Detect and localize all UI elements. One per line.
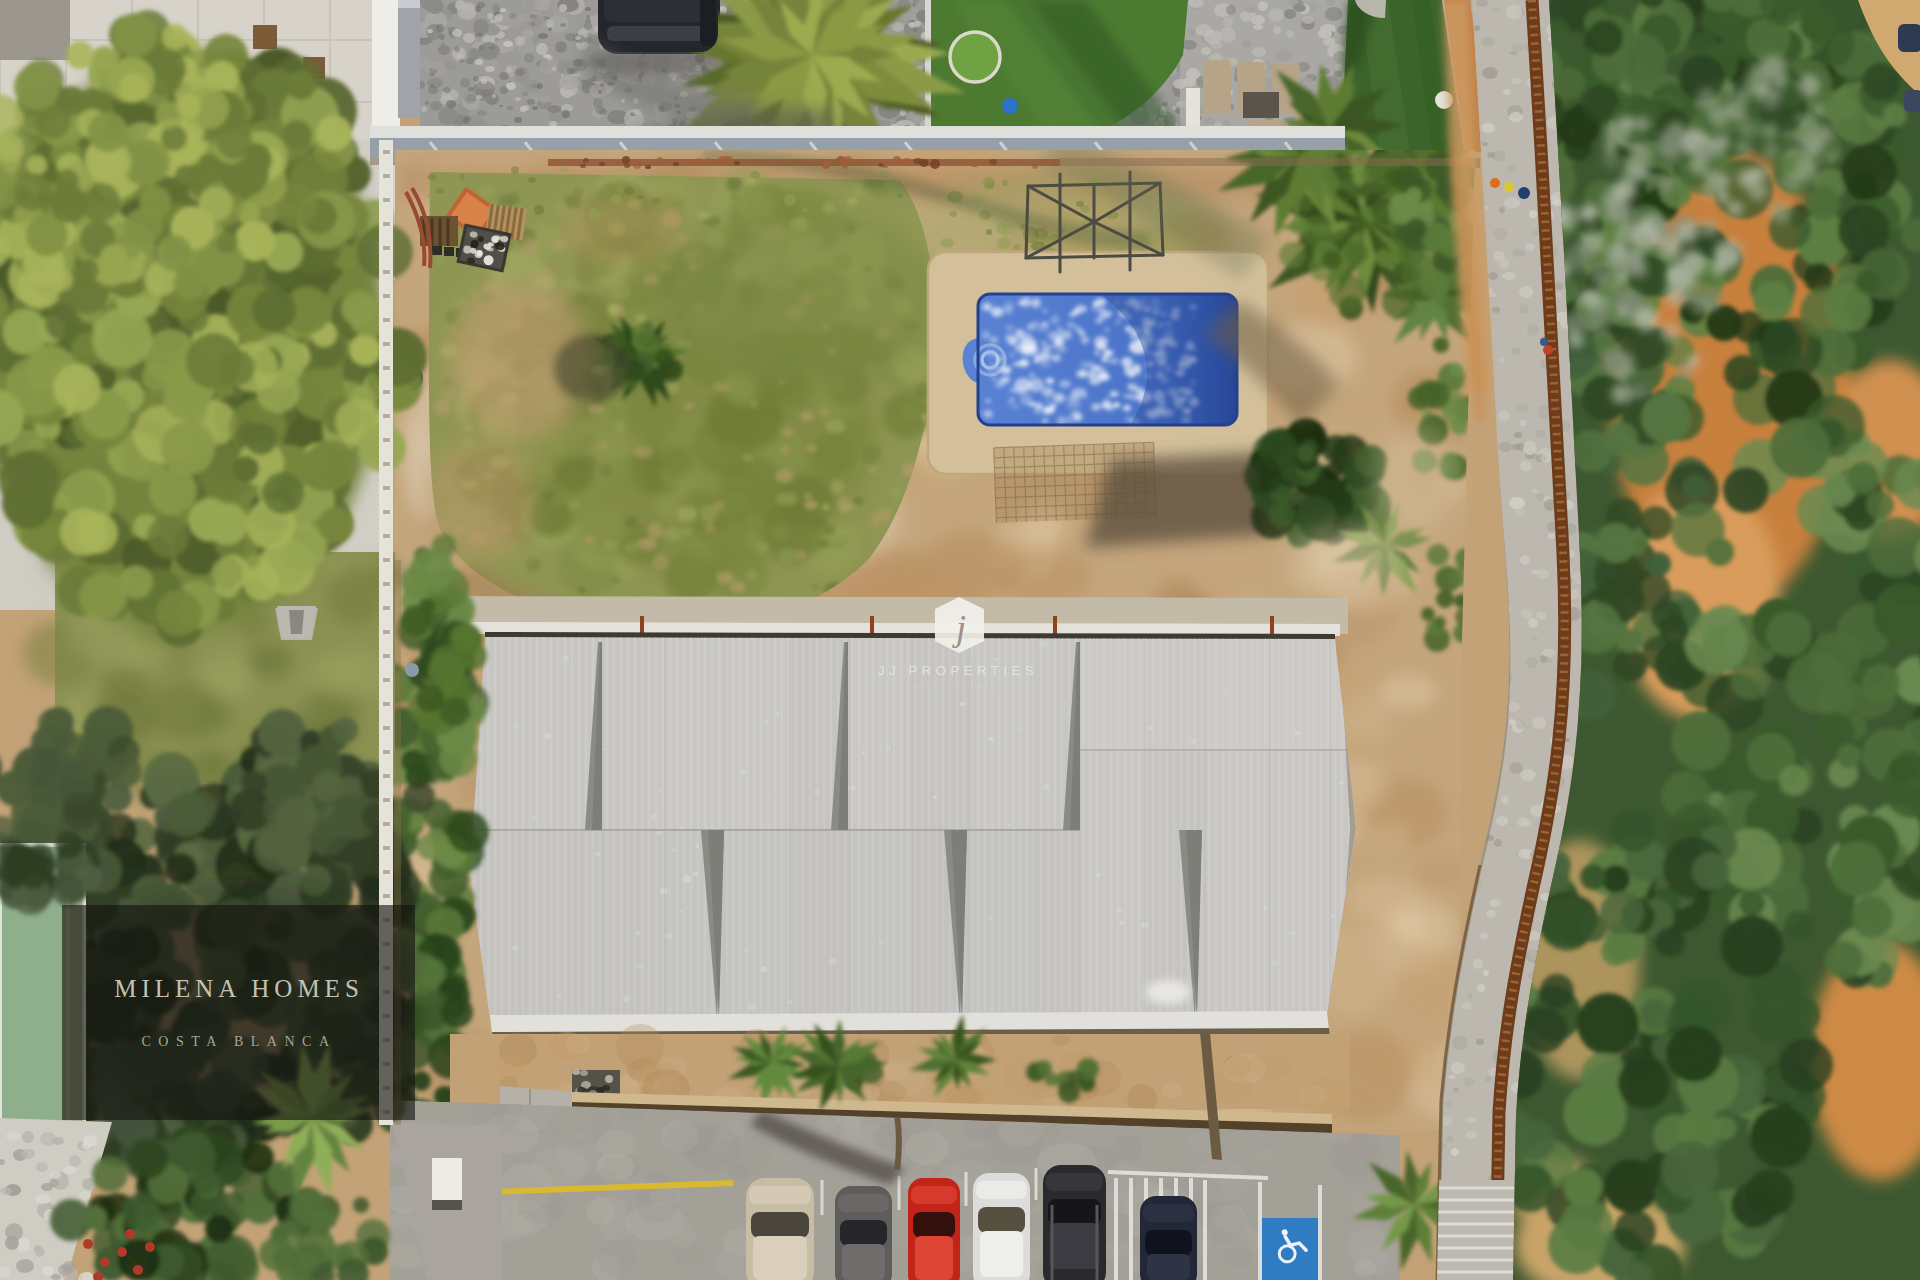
svg-text:COSTA BLANCA: COSTA BLANCA: [141, 1034, 336, 1049]
svg-text:JJ PROPERTIES: JJ PROPERTIES: [878, 663, 1038, 678]
svg-text:MILENA HOMES: MILENA HOMES: [114, 975, 364, 1002]
svg-text:REAL ESTATE: REAL ESTATE: [915, 682, 1001, 691]
